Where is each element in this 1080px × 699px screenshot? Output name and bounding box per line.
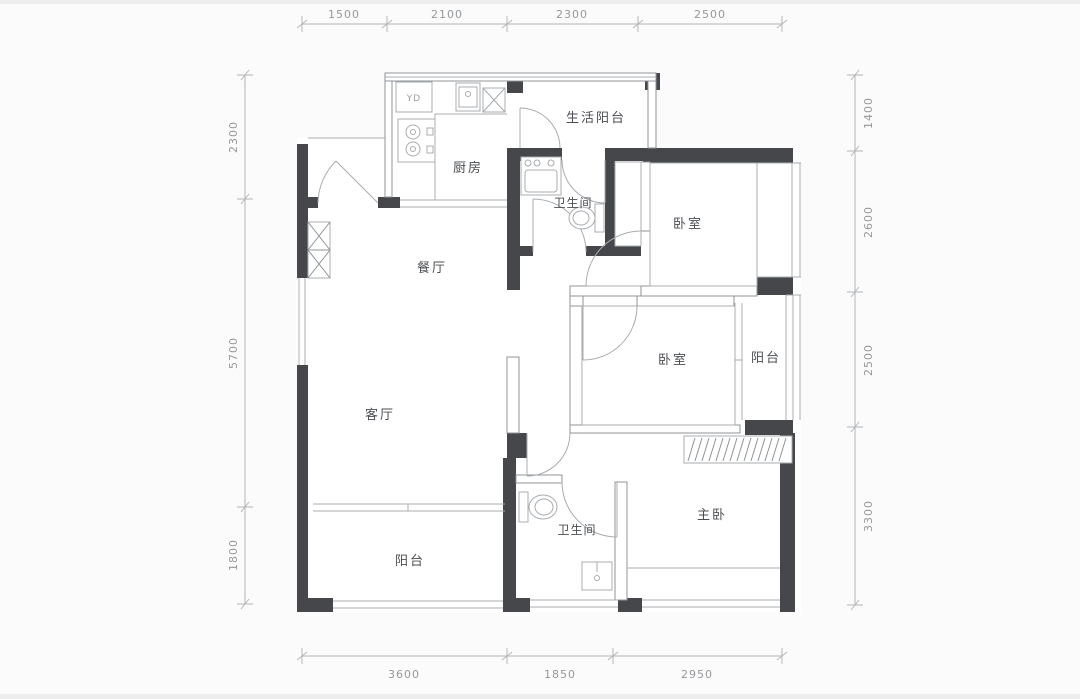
dim-label-top-2: 2100 [431, 8, 463, 21]
wall-segment [586, 246, 641, 256]
dim-label-right-4: 3300 [862, 500, 875, 532]
bedroom2-bottom-wall [570, 425, 740, 433]
dim-label-bottom-3: 2950 [681, 668, 713, 681]
bath2-top-wall [516, 475, 562, 483]
room-label-bath-top: 卫生间 [553, 196, 592, 210]
room-label-kitchen: 厨房 [453, 160, 483, 176]
dim-label-top-4: 2500 [694, 8, 726, 21]
wall-segment [507, 433, 527, 458]
dim-label-left-3: 1800 [227, 539, 240, 571]
dim-label-left-2: 5700 [227, 337, 240, 369]
living-right-wall [507, 357, 519, 433]
dim-label-left-1: 2300 [227, 121, 240, 153]
bedroom2-top-left-wall [570, 296, 583, 306]
floor-plan-image: YD [0, 0, 1080, 699]
wall-segment [757, 277, 793, 295]
room-label-balcony-right: 阳台 [751, 351, 781, 366]
dim-label-top-3: 2300 [556, 8, 588, 21]
wall-segment [297, 598, 333, 612]
wall-segment [297, 365, 308, 598]
dimension-line-bottom [297, 648, 787, 664]
room-label-bath-bottom: 卫生间 [557, 523, 596, 537]
room-label-life-balcony: 生活阳台 [566, 111, 626, 126]
bedroom1-bay-window [757, 163, 801, 277]
floor-plan-svg: YD [0, 0, 1080, 699]
dim-label-bottom-2: 1850 [544, 668, 576, 681]
nook-divider-wall [570, 286, 641, 296]
toilet-tank [519, 492, 528, 522]
wall-segment [503, 458, 516, 600]
wall-segment [503, 598, 530, 612]
hall-right-wall [570, 286, 582, 425]
dim-label-right-2: 2600 [862, 206, 875, 238]
washer-label: YD [406, 94, 421, 104]
room-label-bedroom-mid: 卧室 [658, 352, 688, 368]
photo-top-edge [0, 0, 1080, 4]
photo-bottom-edge [0, 694, 1080, 699]
dim-label-top-1: 1500 [328, 8, 360, 21]
kitchen-left-wall [385, 81, 392, 197]
life-balcony-window [648, 81, 656, 148]
room-label-living: 客厅 [365, 407, 395, 423]
bedroom2-top-wall [637, 296, 734, 306]
wall-segment [643, 148, 793, 163]
wall-segment [745, 420, 793, 435]
wall-segment [780, 568, 795, 612]
room-label-master: 主卧 [697, 508, 727, 523]
wall-segment [520, 246, 533, 256]
dim-label-right-3: 2500 [862, 344, 875, 376]
room-label-dining: 餐厅 [417, 260, 447, 276]
wall-segment [297, 144, 308, 278]
toilet-tank [595, 204, 604, 232]
dim-label-bottom-1: 3600 [388, 668, 420, 681]
dimension-line-right [847, 70, 863, 610]
room-label-balcony-bottom: 阳台 [395, 554, 425, 569]
shower-partition-wall [605, 148, 615, 246]
room-label-bedroom-top: 卧室 [673, 216, 703, 232]
bedroom1-bottom-wall [641, 286, 757, 296]
wall-segment [378, 197, 400, 208]
wall-segment [297, 197, 318, 208]
wall-segment [507, 148, 520, 290]
vanity-counter [521, 157, 561, 195]
bedroom1-left-wall [641, 162, 650, 231]
dim-label-right-1: 1400 [862, 97, 875, 129]
